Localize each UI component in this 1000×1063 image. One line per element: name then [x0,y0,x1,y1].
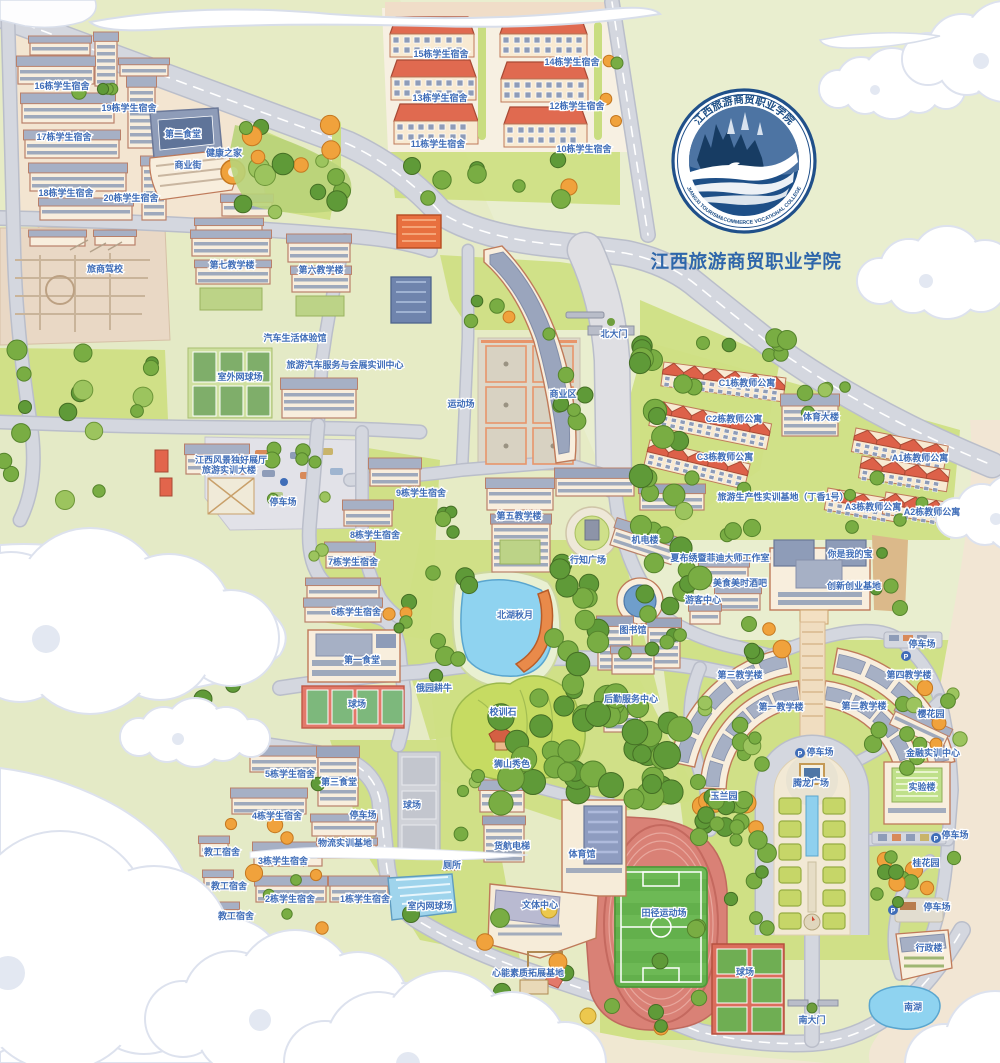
svg-text:第六教学楼: 第六教学楼 [298,264,343,275]
svg-text:体育馆: 体育馆 [568,848,595,859]
svg-text:商业街: 商业街 [174,159,201,170]
svg-text:校训石: 校训石 [489,706,516,717]
svg-text:文体中心: 文体中心 [521,899,558,910]
svg-text:旅商驾校: 旅商驾校 [87,263,124,274]
svg-text:5栋学生宿舍: 5栋学生宿舍 [265,768,316,779]
svg-text:球场: 球场 [403,799,421,810]
svg-text:17栋学生宿舍: 17栋学生宿舍 [36,131,92,142]
svg-text:教工宿舍: 教工宿舍 [210,880,248,891]
svg-text:停车场: 停车场 [806,746,833,757]
svg-text:商业区: 商业区 [549,388,576,399]
svg-text:室内网球场: 室内网球场 [407,900,452,911]
svg-text:旅游生产性实训基地（丁香1号）: 旅游生产性实训基地（丁香1号） [717,491,848,502]
svg-text:A1栋教师公寓: A1栋教师公寓 [892,452,949,463]
svg-text:夏布绣暨菲迪大师工作室: 夏布绣暨菲迪大师工作室 [669,552,769,563]
svg-text:停车场: 停车场 [349,809,376,820]
svg-text:教工宿舍: 教工宿舍 [203,846,241,857]
svg-text:球场: 球场 [348,698,366,709]
svg-text:图书馆: 图书馆 [619,624,646,635]
svg-text:13栋学生宿舍: 13栋学生宿舍 [412,92,468,103]
svg-text:第一教学楼: 第一教学楼 [758,701,803,712]
svg-text:货航电梯: 货航电梯 [494,840,530,851]
svg-text:20栋学生宿舍: 20栋学生宿舍 [103,192,159,203]
svg-text:6栋学生宿舍: 6栋学生宿舍 [331,606,382,617]
svg-text:俄园耕牛: 俄园耕牛 [415,682,452,693]
svg-text:江西风景独好展厅: 江西风景独好展厅 [195,454,267,465]
svg-text:玉兰园: 玉兰园 [710,790,737,801]
svg-text:运动场: 运动场 [447,398,474,409]
svg-text:行政楼: 行政楼 [914,942,942,953]
svg-text:16栋学生宿舍: 16栋学生宿舍 [34,80,90,91]
svg-text:金融实训中心: 金融实训中心 [905,747,960,758]
svg-text:P: P [798,751,803,758]
svg-text:19栋学生宿舍: 19栋学生宿舍 [101,102,157,113]
svg-text:10栋学生宿舍: 10栋学生宿舍 [556,143,612,154]
svg-text:厕所: 厕所 [443,859,461,870]
svg-text:停车场: 停车场 [923,901,950,912]
svg-text:樱花园: 樱花园 [916,708,944,719]
svg-text:1栋学生宿舍: 1栋学生宿舍 [340,893,391,904]
svg-text:实验楼: 实验楼 [908,781,935,792]
svg-text:健康之家: 健康之家 [206,147,243,158]
svg-text:3栋学生宿舍: 3栋学生宿舍 [258,855,309,866]
svg-text:15栋学生宿舍: 15栋学生宿舍 [413,48,469,59]
svg-text:第二食堂: 第二食堂 [165,128,201,139]
svg-text:球场: 球场 [736,966,754,977]
svg-text:第七教学楼: 第七教学楼 [209,259,254,270]
svg-text:12栋学生宿舍: 12栋学生宿舍 [549,100,605,111]
svg-text:北湖秋月: 北湖秋月 [497,609,533,620]
svg-text:P: P [891,908,896,915]
svg-text:教工宿舍: 教工宿舍 [217,910,255,921]
svg-text:C1栋教师公寓: C1栋教师公寓 [719,377,776,388]
svg-text:你是我的宝: 你是我的宝 [826,548,872,559]
svg-text:第五教学楼: 第五教学楼 [496,510,541,521]
svg-text:创新创业基地: 创新创业基地 [826,580,881,591]
svg-text:A2栋教师公寓: A2栋教师公寓 [904,506,961,517]
svg-text:C2栋教师公寓: C2栋教师公寓 [706,413,763,424]
svg-text:4栋学生宿舍: 4栋学生宿舍 [252,810,303,821]
svg-text:行知广场: 行知广场 [569,554,606,565]
svg-text:北大门: 北大门 [600,328,627,339]
svg-text:11栋学生宿舍: 11栋学生宿舍 [411,138,467,149]
svg-text:P: P [934,836,939,843]
svg-text:第二教学楼: 第二教学楼 [841,700,886,711]
svg-text:美食美时酒吧: 美食美时酒吧 [713,577,767,588]
svg-text:体育大楼: 体育大楼 [803,411,839,422]
svg-text:第三教学楼: 第三教学楼 [717,669,762,680]
svg-text:8栋学生宿舍: 8栋学生宿舍 [350,529,401,540]
svg-text:南湖: 南湖 [904,1001,922,1012]
svg-text:后勤服务中心: 后勤服务中心 [604,693,658,704]
svg-text:南大门: 南大门 [798,1014,825,1025]
svg-text:14栋学生宿舍: 14栋学生宿舍 [544,56,600,67]
svg-text:第四教学楼: 第四教学楼 [886,669,931,680]
svg-text:停车场: 停车场 [908,638,935,649]
svg-text:18栋学生宿舍: 18栋学生宿舍 [38,187,94,198]
svg-text:第三食堂: 第三食堂 [321,776,357,787]
svg-text:江西旅游商贸职业学院: 江西旅游商贸职业学院 [650,251,841,272]
svg-text:旅游实训大楼: 旅游实训大楼 [202,464,256,475]
svg-text:田径运动场: 田径运动场 [641,907,686,918]
svg-text:心能素质拓展基地: 心能素质拓展基地 [492,967,564,978]
svg-text:7栋学生宿舍: 7栋学生宿舍 [328,556,379,567]
svg-text:第一食堂: 第一食堂 [344,654,380,665]
svg-text:C3栋教师公寓: C3栋教师公寓 [697,451,754,462]
svg-text:狮山秀色: 狮山秀色 [493,758,530,769]
svg-text:停车场: 停车场 [269,496,296,507]
svg-text:停车场: 停车场 [941,829,968,840]
svg-text:2栋学生宿舍: 2栋学生宿舍 [265,893,316,904]
svg-text:9栋学生宿舍: 9栋学生宿舍 [396,487,447,498]
svg-text:室外网球场: 室外网球场 [217,371,262,382]
svg-text:A3栋教师公寓: A3栋教师公寓 [845,501,902,512]
svg-text:游客中心: 游客中心 [685,594,721,605]
svg-text:腾龙广场: 腾龙广场 [792,777,829,788]
svg-text:机电楼: 机电楼 [631,534,658,545]
svg-text:旅游汽车服务与会展实训中心: 旅游汽车服务与会展实训中心 [286,359,403,370]
svg-text:物流实训基地: 物流实训基地 [318,837,372,848]
svg-text:汽车生活体验馆: 汽车生活体验馆 [263,332,326,343]
svg-text:P: P [904,654,909,661]
svg-text:桂花园: 桂花园 [911,857,939,868]
